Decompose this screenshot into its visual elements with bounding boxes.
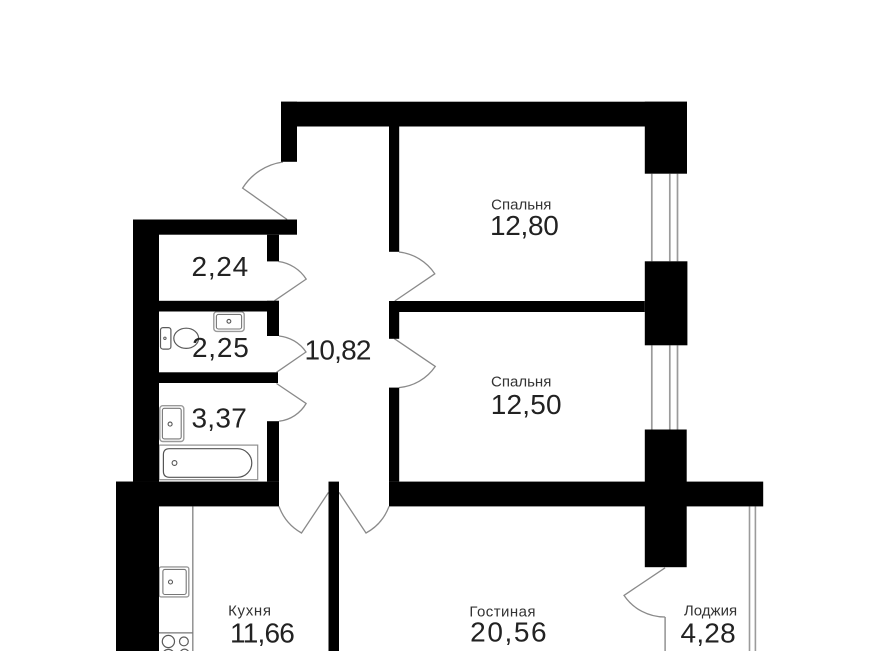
svg-text:2,24: 2,24 — [192, 251, 249, 282]
svg-text:4,28: 4,28 — [681, 618, 736, 649]
svg-text:10,82: 10,82 — [305, 334, 371, 365]
svg-text:2,25: 2,25 — [192, 332, 250, 363]
svg-text:12,80: 12,80 — [490, 210, 559, 241]
svg-text:11,66: 11,66 — [230, 617, 294, 648]
svg-text:20,56: 20,56 — [470, 617, 548, 648]
svg-text:12,50: 12,50 — [491, 389, 562, 420]
svg-text:3,37: 3,37 — [191, 403, 247, 434]
